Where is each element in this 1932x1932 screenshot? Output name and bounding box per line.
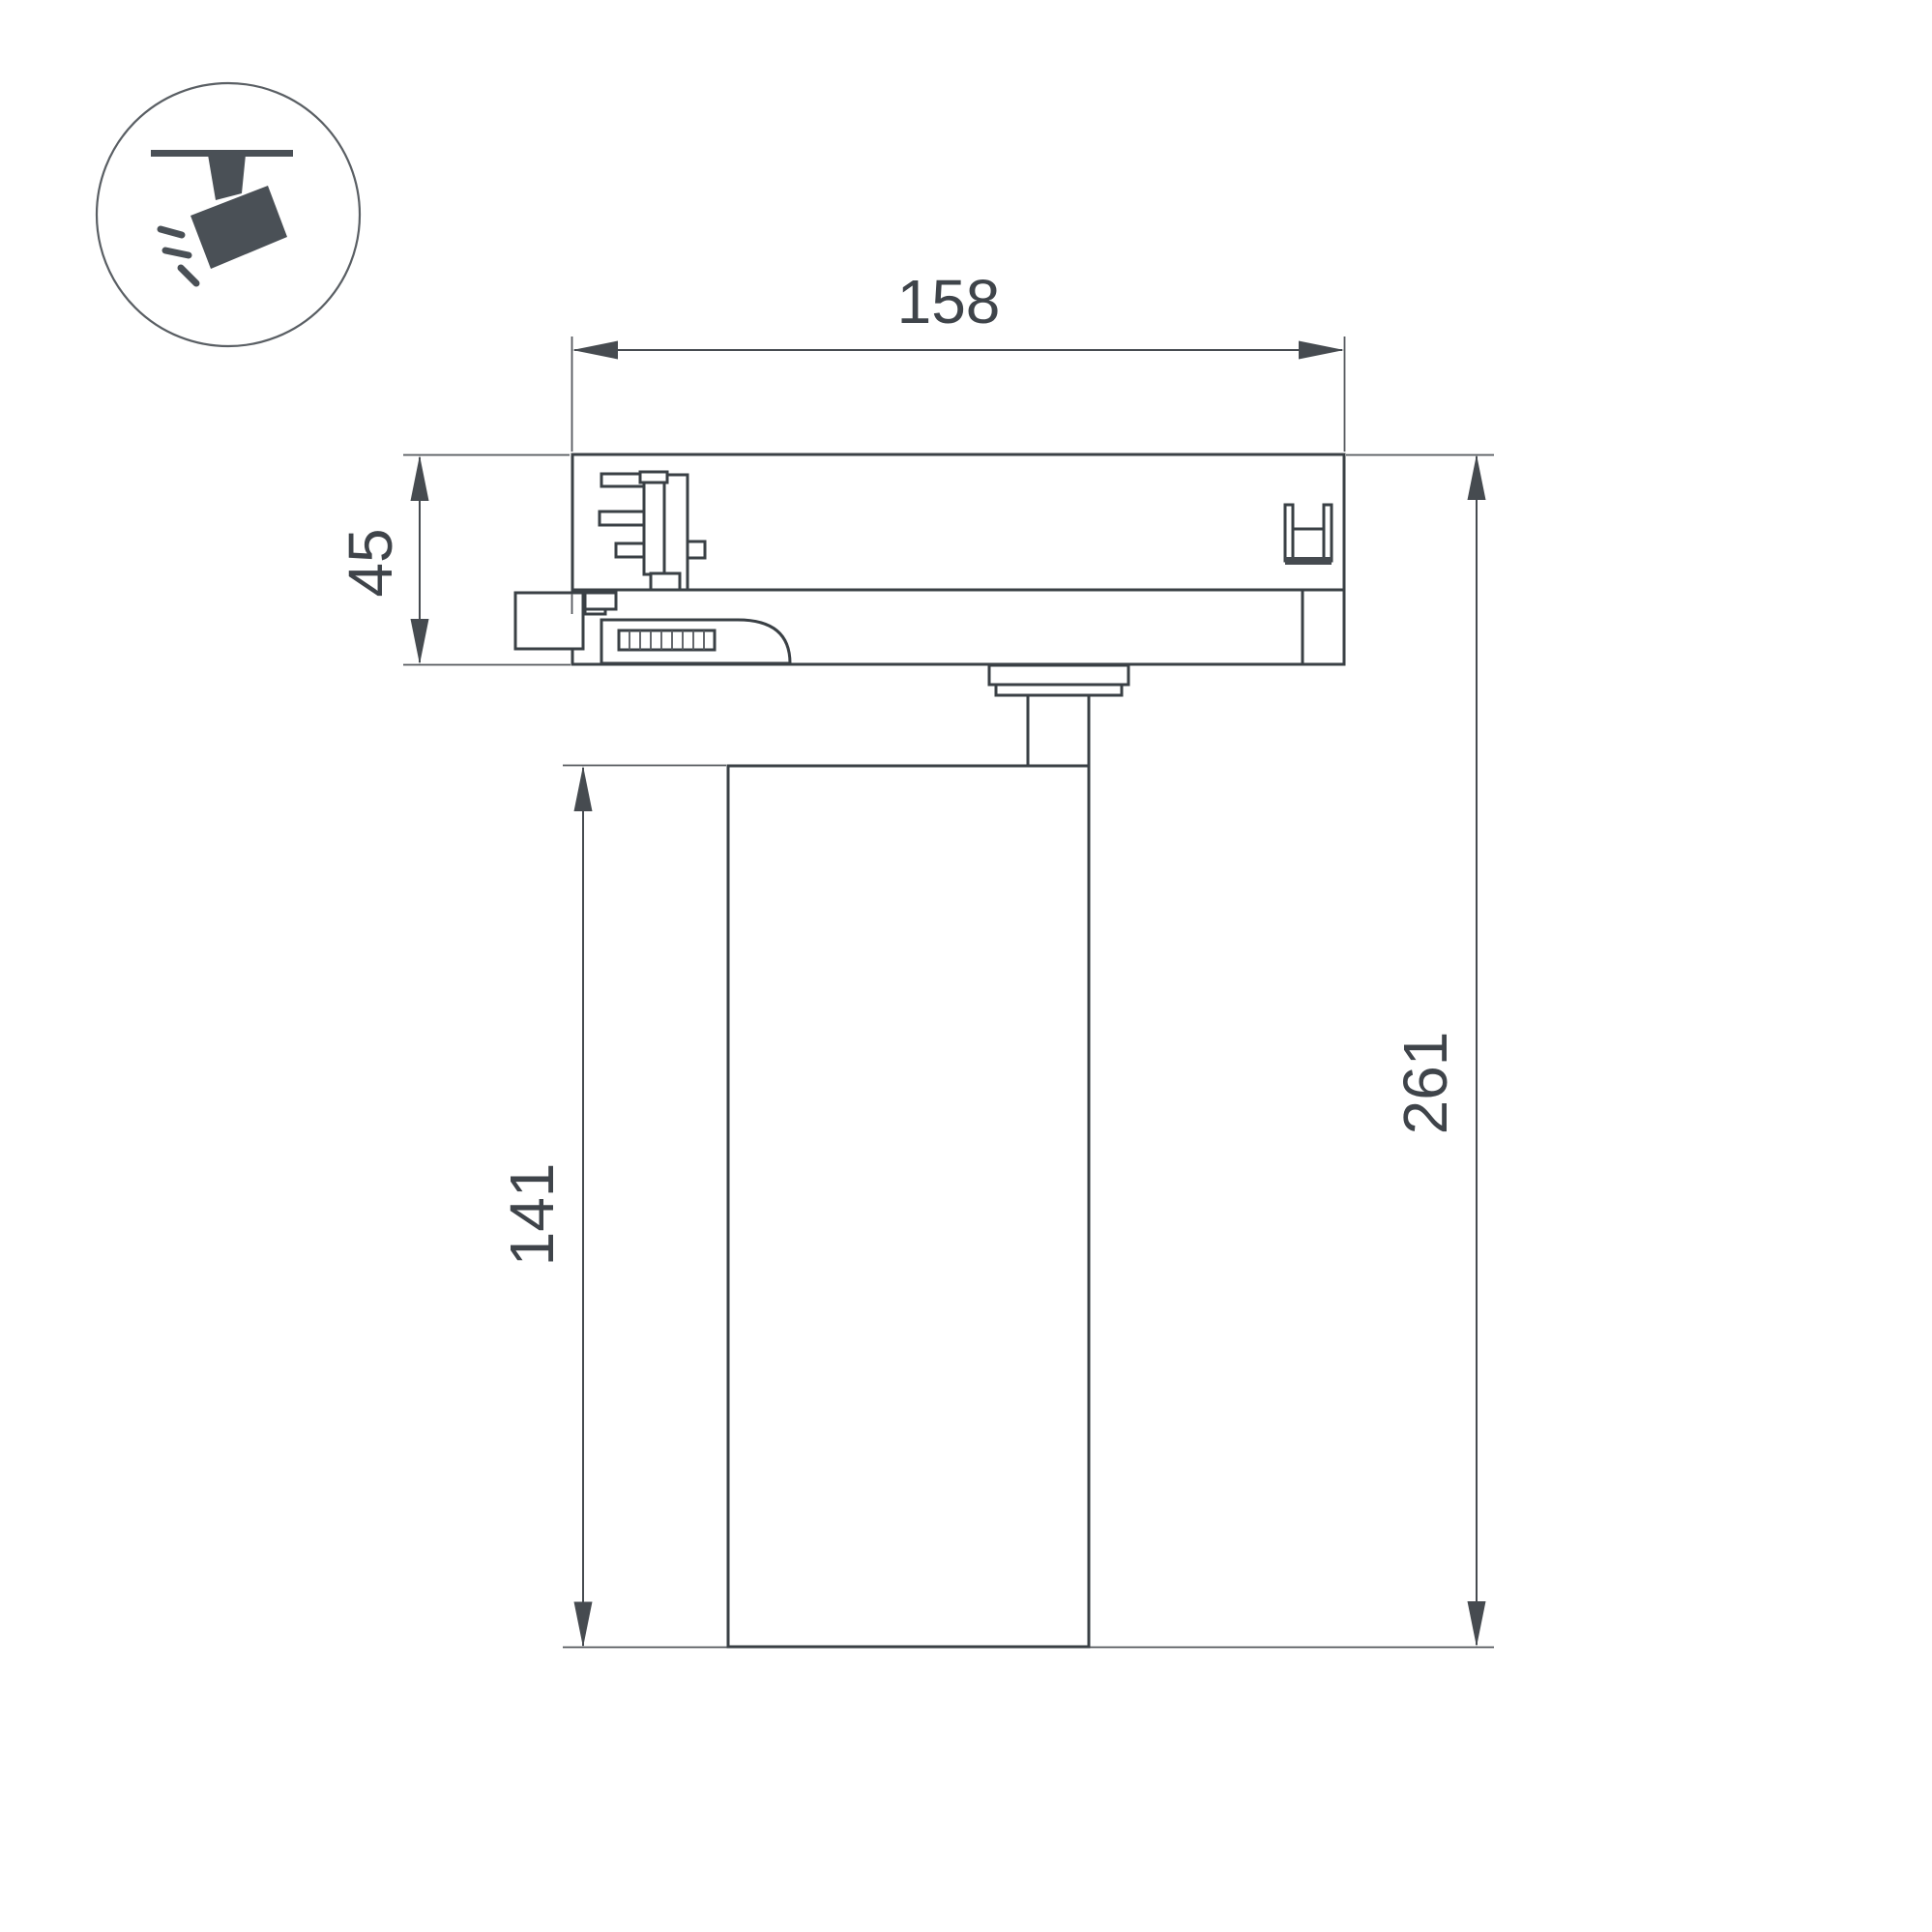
dimension-drawing: 158 45 141 261 Ø90 bbox=[0, 0, 1932, 1932]
track-adapter bbox=[515, 454, 1344, 664]
arrow-down-icon bbox=[411, 619, 429, 664]
mounting-neck bbox=[989, 665, 1128, 766]
contact-prong-right bbox=[688, 542, 705, 558]
contact-prong-lower bbox=[616, 543, 644, 557]
neck-stem bbox=[1028, 695, 1089, 766]
latch-step bbox=[585, 593, 616, 609]
dim-width-label: 158 bbox=[897, 267, 1001, 337]
contact-foot bbox=[651, 573, 680, 590]
neck-flange-lower bbox=[996, 685, 1122, 695]
dim-adapter-height-label: 45 bbox=[336, 528, 405, 597]
arrow-right-icon bbox=[1299, 341, 1344, 360]
track-spotlight-icon bbox=[97, 83, 360, 346]
arrow-down-icon bbox=[1468, 1601, 1486, 1647]
arrow-left-icon bbox=[572, 341, 618, 360]
dim-total-height-label: 261 bbox=[1390, 1032, 1460, 1135]
lamp-body-cylinder bbox=[728, 766, 1089, 1647]
contact-prong-middle bbox=[600, 512, 644, 525]
arrow-up-icon bbox=[411, 455, 429, 501]
neck-flange-upper bbox=[989, 665, 1128, 685]
contact-center-bar bbox=[644, 481, 664, 574]
latch-lever bbox=[515, 593, 583, 649]
arrow-up-icon bbox=[574, 766, 593, 811]
contact-prong-top bbox=[601, 474, 645, 486]
dim-body-height-label: 141 bbox=[497, 1163, 567, 1267]
ribbed-slider bbox=[619, 630, 715, 650]
arrow-down-icon bbox=[574, 1602, 593, 1648]
arrow-up-icon bbox=[1468, 454, 1486, 500]
contact-top-cap bbox=[640, 472, 667, 483]
latch-step-small bbox=[585, 609, 605, 614]
drawing-canvas: 158 45 141 261 Ø90 bbox=[0, 0, 1932, 1932]
